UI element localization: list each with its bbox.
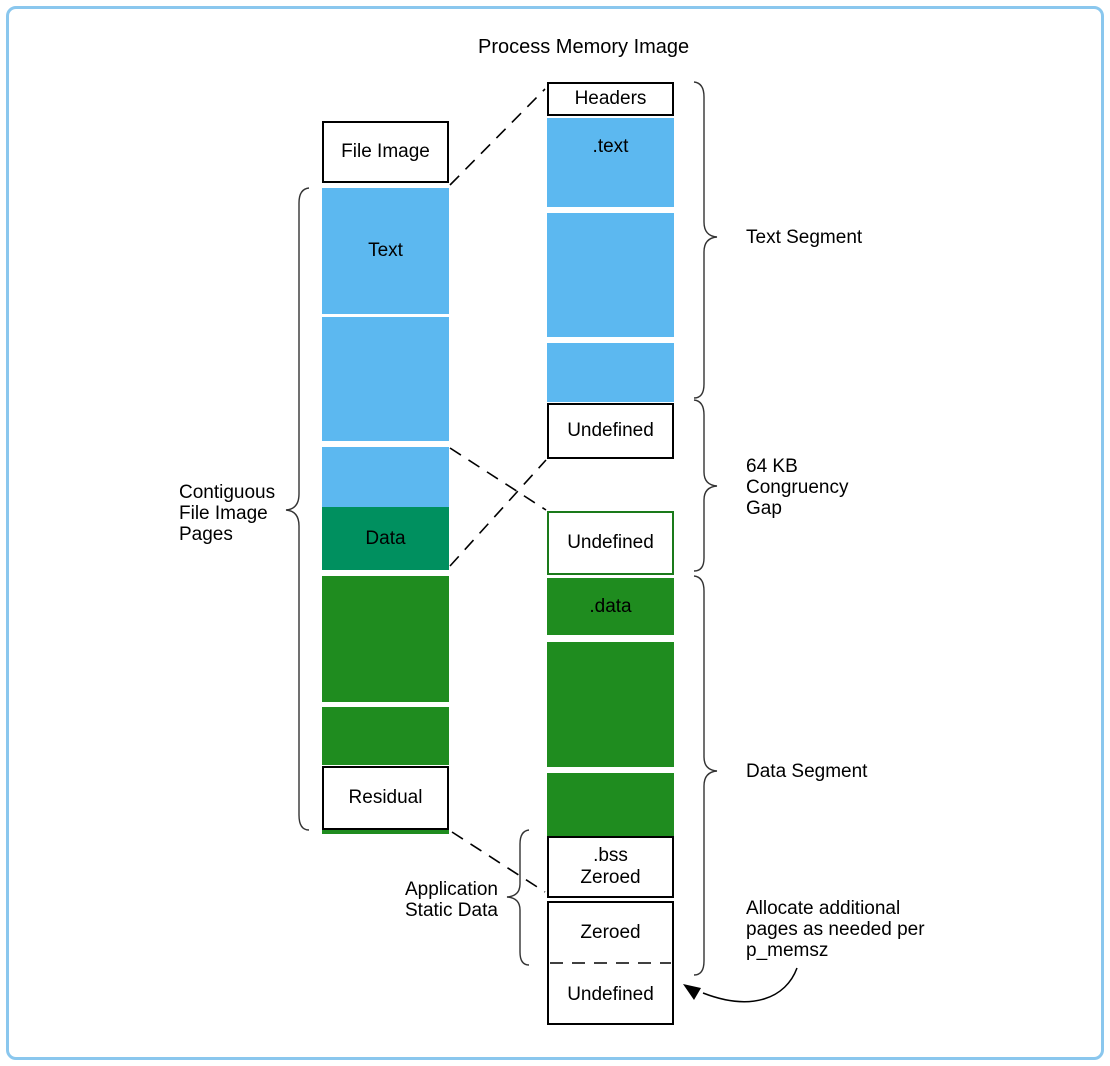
memory-data-block-2 [547,642,674,767]
page-title: Process Memory Image [478,37,678,58]
headers-label: Headers [575,88,647,110]
contiguous-line-1: Contiguous [179,482,275,503]
app-static-line-1: Application [405,879,498,900]
undefined-box-top: Undefined [547,403,674,459]
bss-label-line1: .bss [593,845,628,867]
file-image-label-box: File Image [322,121,449,183]
text-segment-label: Text Segment [746,227,862,248]
allocate-line-1: Allocate additional [746,898,925,919]
data-segment-label: Data Segment [746,761,867,782]
file-text-block-1: Text [322,188,449,314]
undefined-box-mid: Undefined [547,511,674,575]
congruency-gap-label: 64 KB Congruency Gap [746,456,848,519]
file-data-label: Data [365,528,405,550]
contiguous-line-2: File Image [179,503,275,524]
app-static-line-2: Static Data [405,900,498,921]
memory-text-block-3 [547,343,674,402]
dashed-connector-data-start [450,460,546,566]
allocate-line-3: p_memsz [746,940,925,961]
text-section-label: .text [593,136,629,158]
file-image-label: File Image [341,141,430,163]
residual-box: Residual [322,766,449,830]
memory-text-section-block: .text [547,118,674,207]
brace-congruency-gap [694,400,717,571]
file-data-block-1: Data [322,507,449,570]
undefined-mid-label: Undefined [567,532,654,554]
allocate-pages-label: Allocate additional pages as needed per … [746,898,925,961]
brace-text-segment [694,82,717,398]
application-static-data-label: Application Static Data [405,879,498,921]
contiguous-pages-label: Contiguous File Image Pages [179,482,275,545]
allocate-line-2: pages as needed per [746,919,925,940]
data-section-label: .data [589,596,631,618]
file-text-label: Text [368,240,403,262]
undefined-top-label: Undefined [567,420,654,442]
brace-data-segment [694,576,717,975]
undefined-bottom-label: Undefined [567,984,654,1006]
bss-zeroed-box: .bss Zeroed [547,836,674,898]
zeroed-undefined-box: Zeroed Undefined [547,901,674,1025]
zeroed-label: Zeroed [580,922,640,944]
residual-label: Residual [349,787,423,809]
contiguous-line-3: Pages [179,524,275,545]
dashed-connector-headers [450,89,545,185]
brace-contiguous-pages [286,188,309,830]
memory-data-section-block: .data [547,578,674,635]
file-data-block-2 [322,576,449,702]
brace-application-static-data [507,830,529,965]
bss-label-line2: Zeroed [580,867,640,889]
allocate-arrowhead-icon [683,984,701,1000]
gap-line-3: Gap [746,498,848,519]
dashed-connector-text-end [450,448,546,510]
memory-data-block-3 [547,773,674,836]
file-text-block-2 [322,317,449,441]
process-memory-diagram: Process Memory Image File Image Text Dat… [0,0,1110,1066]
allocate-arrow-curve [703,968,797,1002]
file-data-block-3 [322,707,449,765]
file-text-block-3 [322,447,449,507]
gap-line-1: 64 KB [746,456,848,477]
memory-text-block-2 [547,213,674,337]
file-data-edge-strip [322,830,449,834]
gap-line-2: Congruency [746,477,848,498]
headers-box: Headers [547,82,674,116]
